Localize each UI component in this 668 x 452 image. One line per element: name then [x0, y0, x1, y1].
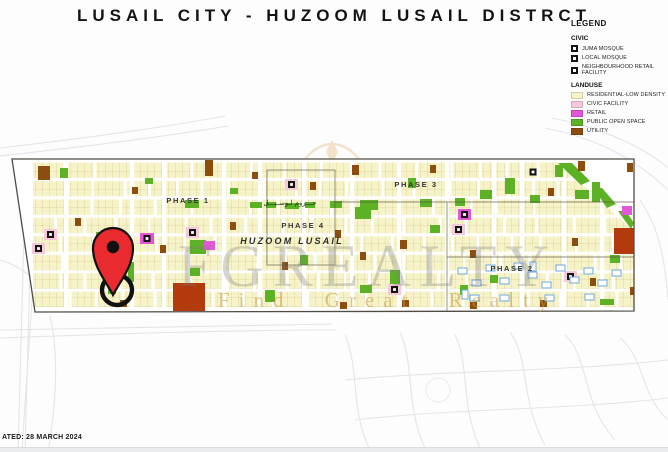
legend-item-label: CIVIC FACILITY	[587, 101, 628, 107]
legend-item: RESIDENTIAL-LOW DENSITY	[571, 92, 667, 99]
legend-item: LOCAL MOSQUE	[571, 55, 667, 62]
local-mosque-icon	[571, 55, 578, 62]
legend-item-label: RESIDENTIAL-LOW DENSITY	[587, 92, 665, 98]
legend-item-label: UTILITY	[587, 128, 608, 134]
phase-label: PHASE 2	[490, 264, 533, 273]
legend-item-label: RETAIL	[587, 110, 606, 116]
phase-label: PHASE 4	[281, 221, 324, 230]
legend-item: RETAIL	[571, 110, 667, 117]
utility-station-block	[173, 283, 205, 311]
legend-heading: LEGEND	[571, 19, 667, 28]
landuse-swatch	[571, 92, 583, 99]
legend-item: PUBLIC OPEN SPACE	[571, 119, 667, 126]
phase-label: PHASE 1	[166, 196, 209, 205]
utility-station-block	[614, 228, 635, 254]
legend-item: UTILITY	[571, 128, 667, 135]
legend-item: JUMA MOSQUE	[571, 45, 667, 52]
phase-label: PHASE 3	[394, 180, 437, 189]
legend-landuse-heading: LANDUSE	[571, 82, 667, 89]
sheet-bottom-strip	[0, 447, 668, 452]
location-pin-dot	[107, 241, 119, 253]
landuse-swatch	[571, 128, 583, 135]
page-title: LUSAIL CITY - HUZOOM LUSAIL DISTRCT	[0, 6, 668, 26]
legend-item-label: NEIGHBOURHOOD RETAIL FACILITY	[582, 64, 667, 76]
masterplan-map: PHASE 1PHASE 3PHASE 4PHASE 2HUZOOM LUSAI…	[0, 0, 668, 452]
neighbourhood-retail-facility-icon	[571, 67, 578, 74]
last-updated-label: ATED: 28 MARCH 2024	[2, 434, 82, 441]
landuse-swatch	[571, 110, 583, 117]
district-name-label: HUZOOM LUSAIL	[240, 236, 344, 246]
legend-item-label: JUMA MOSQUE	[582, 46, 624, 52]
district-map-sheet: PHASE 1PHASE 3PHASE 4PHASE 2HUZOOM LUSAI…	[0, 0, 668, 452]
district-name-arabic-label: حـــزوم لـوسـيـــل	[263, 199, 316, 207]
legend-item-label: LOCAL MOSQUE	[582, 55, 627, 61]
legend-item: NEIGHBOURHOOD RETAIL FACILITY	[571, 64, 667, 76]
legend-panel: LEGEND CIVIC JUMA MOSQUELOCAL MOSQUENEIG…	[571, 19, 667, 137]
landuse-swatch	[571, 101, 583, 108]
legend-item-label: PUBLIC OPEN SPACE	[587, 119, 645, 125]
landuse-swatch	[571, 119, 583, 126]
juma-mosque-icon	[571, 45, 578, 52]
legend-item: CIVIC FACILITY	[571, 101, 667, 108]
legend-civic-heading: CIVIC	[571, 35, 667, 42]
